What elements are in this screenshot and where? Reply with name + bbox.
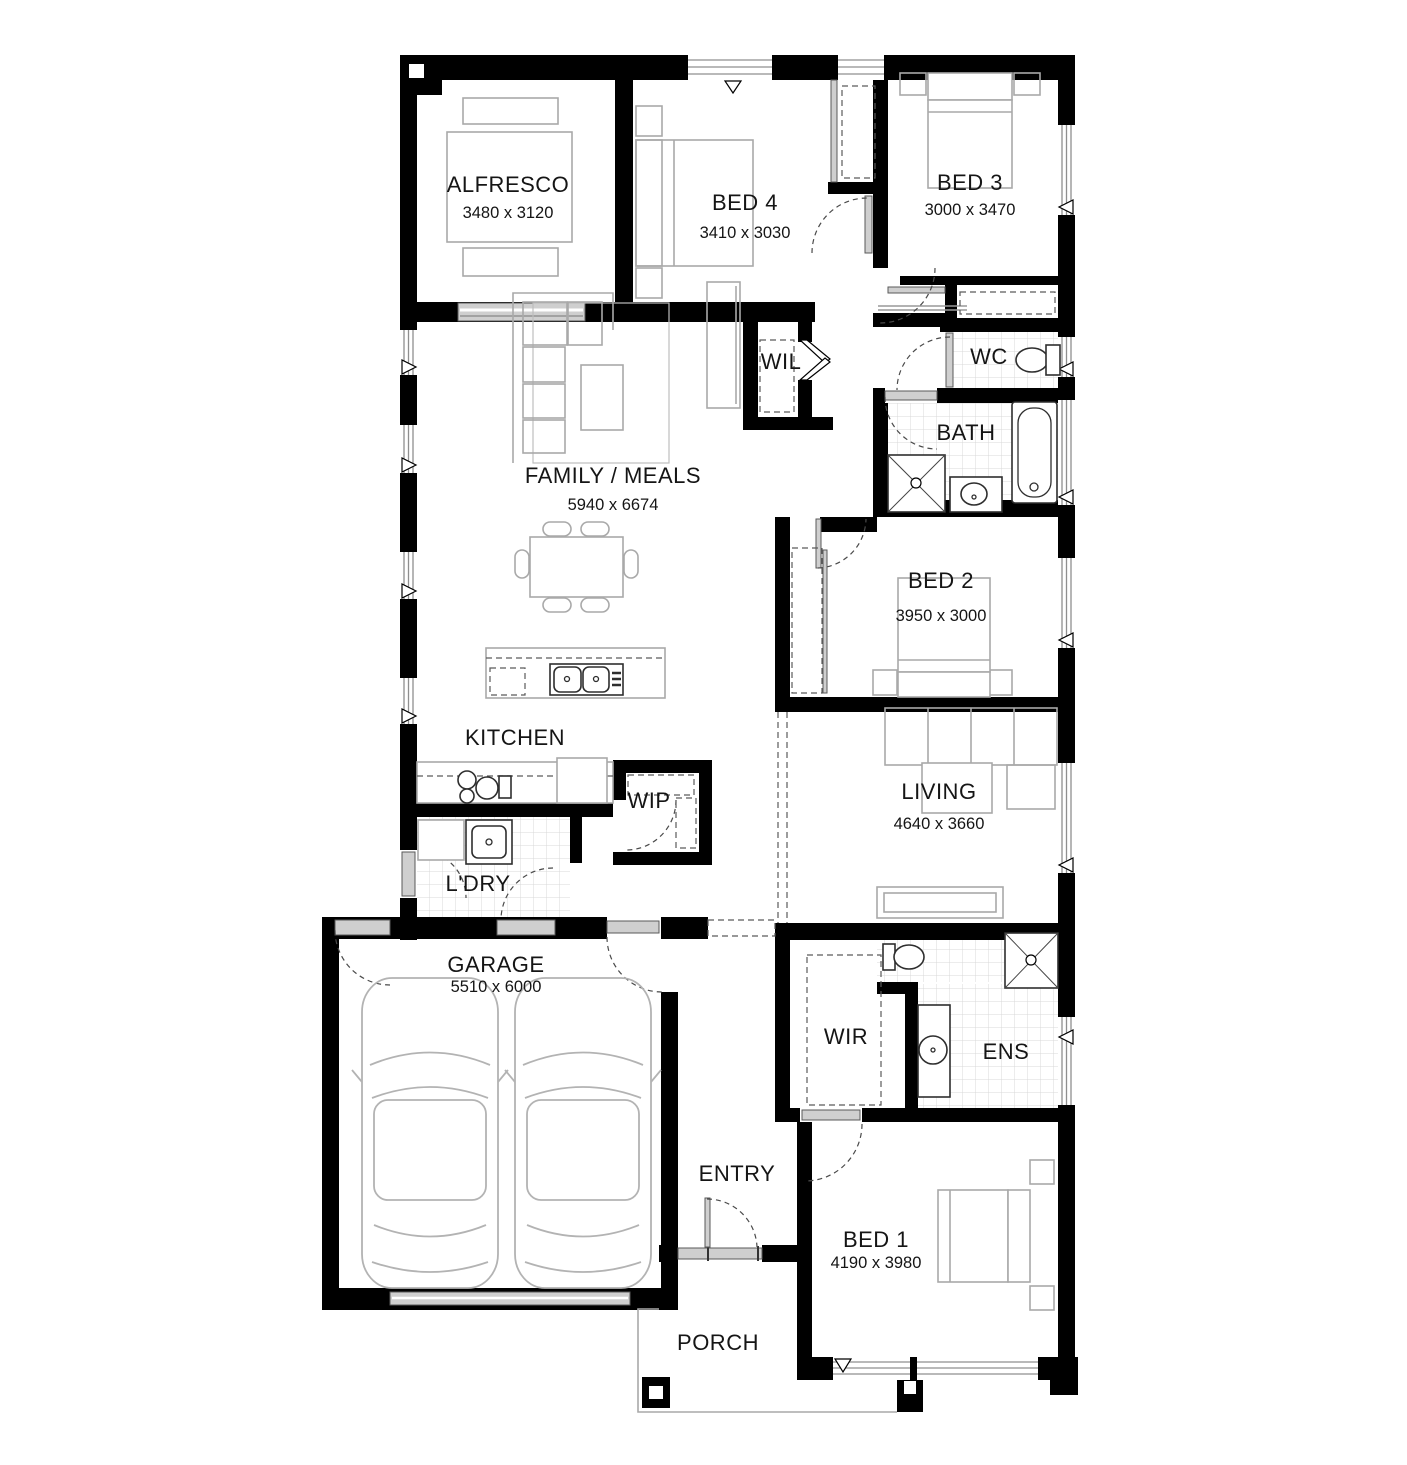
wc-door-swing — [897, 337, 950, 390]
ens-vanity-icon — [918, 1005, 950, 1097]
wil-doors — [800, 340, 830, 380]
bed4-door-swing — [812, 198, 867, 253]
bed2-window-icon — [1058, 558, 1075, 648]
room-label-bed3: BED 3 — [937, 170, 1003, 195]
room-dims-bed2: 3950 x 3000 — [896, 607, 987, 625]
bed4-window-icon — [688, 55, 772, 93]
hall-highlight-window-icon — [838, 55, 884, 80]
room-dims-family: 5940 x 6674 — [568, 496, 659, 514]
room-dims-bed3: 3000 x 3470 — [925, 201, 1016, 219]
room-label-bed2: BED 2 — [908, 568, 974, 593]
bed1-door-swing — [805, 1124, 862, 1181]
ens-shower-icon — [1005, 933, 1058, 988]
room-label-kitchen: KITCHEN — [465, 725, 565, 750]
room-dims-garage: 5510 x 6000 — [451, 978, 542, 996]
family-window-1-icon — [400, 330, 417, 375]
bed1-furniture — [938, 1160, 1054, 1310]
room-label-wil: WIL — [761, 349, 802, 374]
wc-toilet-icon — [1016, 345, 1060, 375]
room-dims-bed1: 4190 x 3980 — [831, 1254, 922, 1272]
room-label-ens: ENS — [983, 1039, 1030, 1064]
living-window-icon — [1058, 763, 1075, 873]
garage-side-door — [335, 920, 390, 935]
room-dims-alfresco: 3480 x 3120 — [463, 204, 554, 222]
bed2-furniture — [873, 578, 1012, 697]
bed1-window-1-icon — [833, 1357, 910, 1380]
bed4-robe-slider — [831, 80, 837, 182]
bath-vanity-icon — [950, 477, 1002, 512]
bed2-door — [816, 519, 821, 568]
bed2-robe — [792, 548, 822, 693]
room-label-porch: PORCH — [677, 1330, 759, 1355]
floor-plan-page: ALFRESCO 3480 x 3120 BED 4 3410 x 3030 B… — [0, 0, 1407, 1465]
bed4-robe — [842, 86, 875, 178]
bed3-window-icon — [1058, 125, 1075, 215]
garage-entry-door-swing — [607, 937, 662, 992]
room-label-wip: WIP — [627, 788, 670, 813]
garage-cars — [352, 978, 661, 1288]
car-2 — [505, 978, 661, 1288]
front-door-swing — [707, 1199, 757, 1247]
room-label-family: FAMILY / MEALS — [525, 463, 701, 488]
ldry-garage-door — [497, 920, 555, 935]
bathtub-icon — [1012, 402, 1057, 503]
room-label-garage: GARAGE — [447, 952, 544, 977]
car-1 — [352, 978, 508, 1288]
bath-shower-icon — [888, 455, 945, 512]
room-label-entry: ENTRY — [699, 1161, 776, 1186]
ens-toilet-icon — [883, 944, 924, 970]
bed3-robe — [960, 292, 1055, 314]
kitchen-furniture — [417, 758, 613, 803]
island-furniture — [486, 648, 665, 698]
family-window-4-icon — [400, 678, 417, 724]
wip-shelf-right — [676, 798, 696, 848]
bed4-door — [865, 196, 872, 253]
bed1-door-threshold — [802, 1110, 860, 1120]
room-label-alfresco: ALFRESCO — [447, 172, 570, 197]
dining-furniture — [515, 522, 638, 612]
room-dims-living: 4640 x 3660 — [894, 815, 985, 833]
front-door — [705, 1198, 710, 1247]
bath-door — [885, 391, 937, 400]
garage-entry-door — [607, 921, 659, 933]
ens-window-icon — [1058, 1017, 1075, 1105]
floor-plan-drawing: ALFRESCO 3480 x 3120 BED 4 3410 x 3030 B… — [0, 0, 1407, 1465]
bed1-window-2-icon — [917, 1357, 1038, 1380]
room-label-living: LIVING — [901, 779, 976, 804]
bed3-robe-slider — [888, 287, 945, 293]
room-label-wir: WIR — [824, 1024, 868, 1049]
wc-door — [946, 333, 953, 387]
room-label-bed4: BED 4 — [712, 190, 778, 215]
alfresco-slider-icon — [458, 303, 585, 321]
room-dims-bed4: 3410 x 3030 — [700, 224, 791, 242]
bath-window-icon — [1058, 400, 1075, 505]
room-label-bed1: BED 1 — [843, 1227, 909, 1252]
room-label-wc: WC — [970, 344, 1008, 369]
entry-kitchen-opening — [708, 920, 775, 936]
room-label-bath: BATH — [936, 420, 995, 445]
room-label-ldry: L'DRY — [446, 871, 511, 896]
family-window-3-icon — [400, 552, 417, 599]
living-furniture — [877, 708, 1057, 918]
front-door-sill — [678, 1248, 762, 1259]
family-window-2-icon — [400, 425, 417, 473]
